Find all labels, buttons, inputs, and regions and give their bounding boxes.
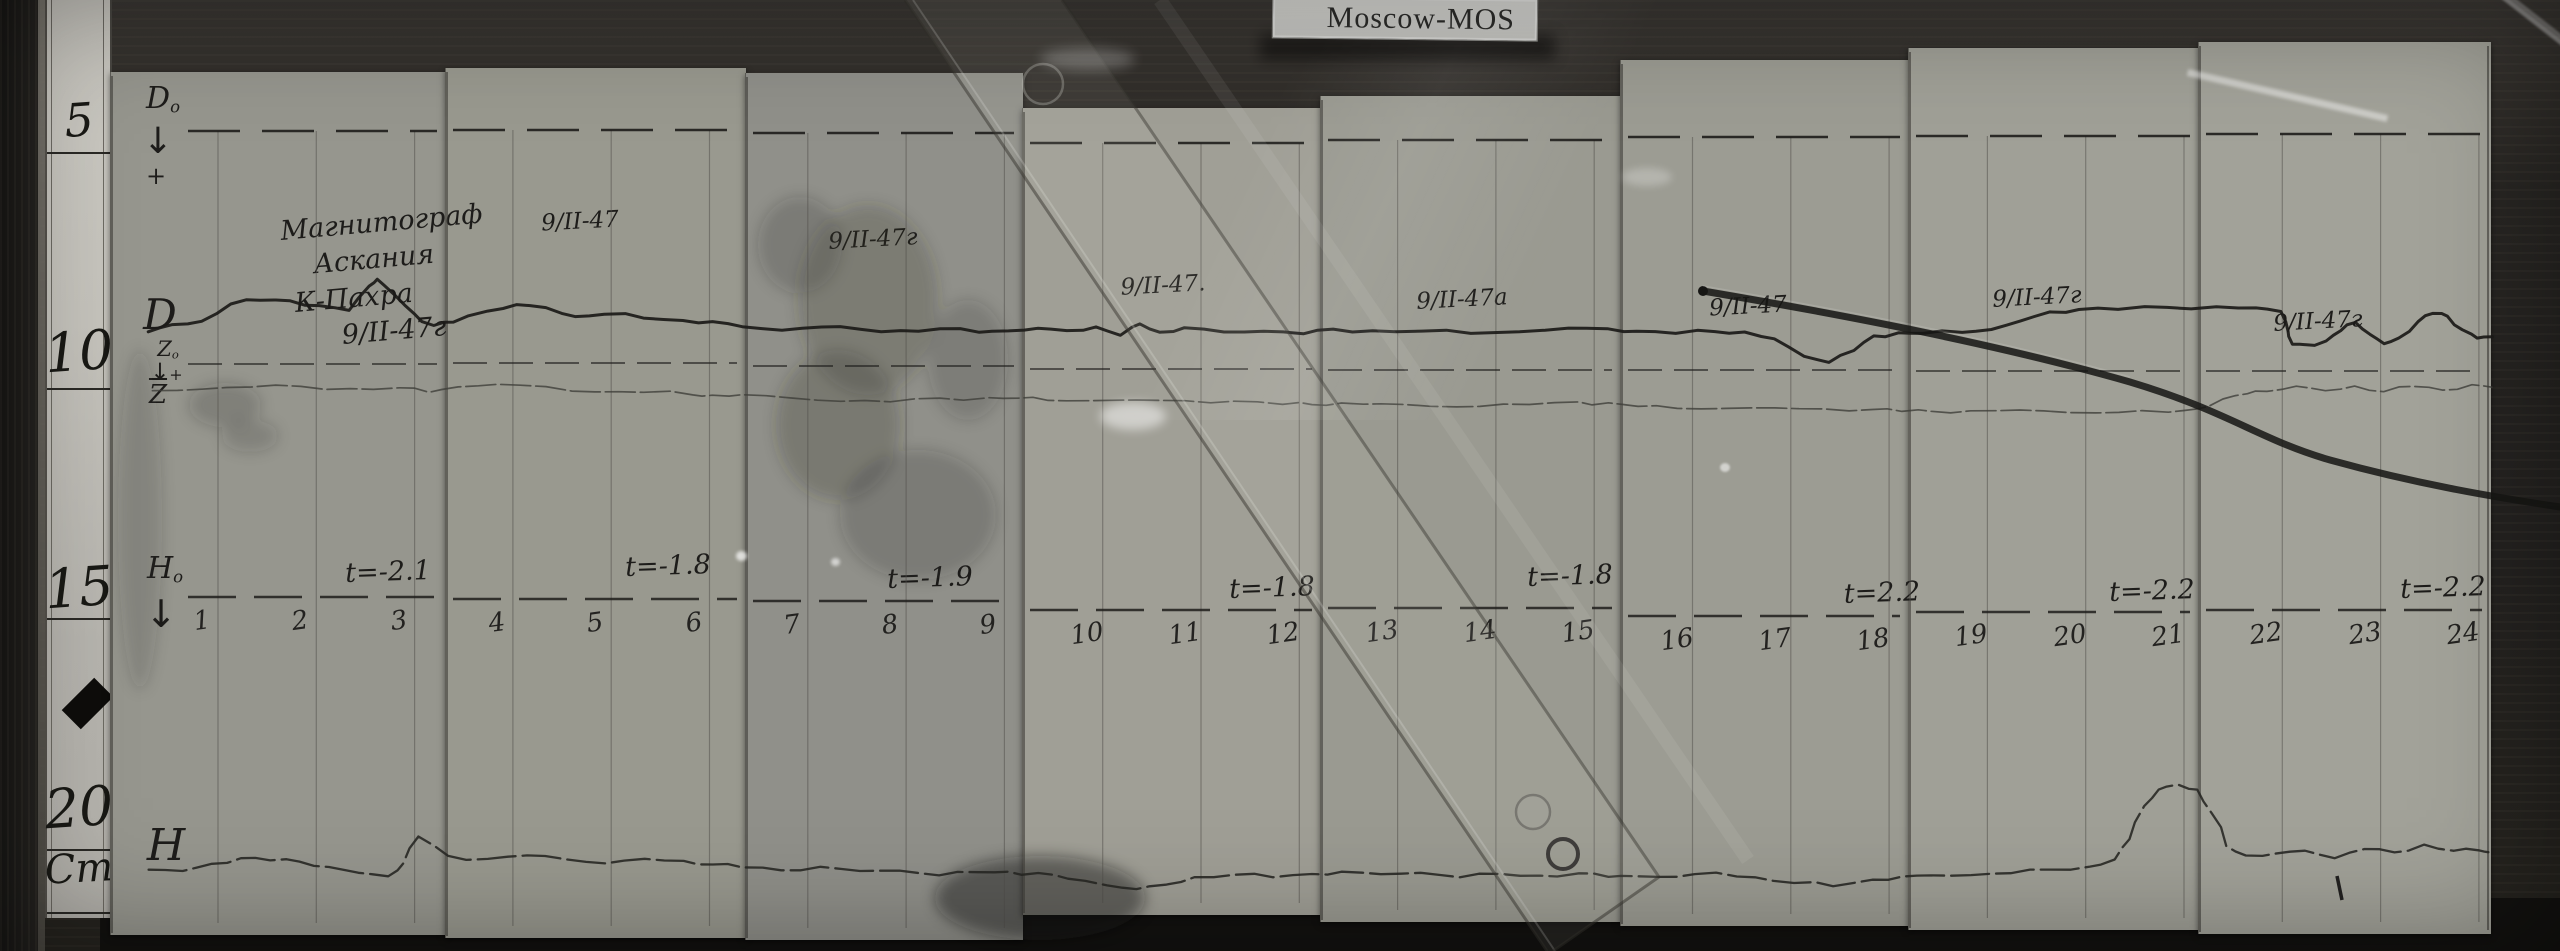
dark-cord (1698, 286, 2560, 507)
pen-rest-mark (2337, 876, 2342, 900)
h-trace (149, 785, 2494, 890)
ruler-hole-large (1516, 795, 1550, 829)
magnetogram-photo: 5101520 Cm Магнитограф Аскания К-Пахра 9… (0, 0, 2560, 951)
chart-overlay-svg (0, 0, 2560, 951)
station-label: Moscow-MOS (1326, 1, 1515, 37)
ruler-right-edge (1062, 0, 1659, 877)
station-label-card: Moscow-MOS (1272, 0, 1539, 42)
d-trace (148, 279, 2492, 362)
paper-stains (118, 197, 1145, 940)
cord-line (1703, 291, 2560, 507)
ruler-left-edge-sheen (913, 0, 1555, 951)
